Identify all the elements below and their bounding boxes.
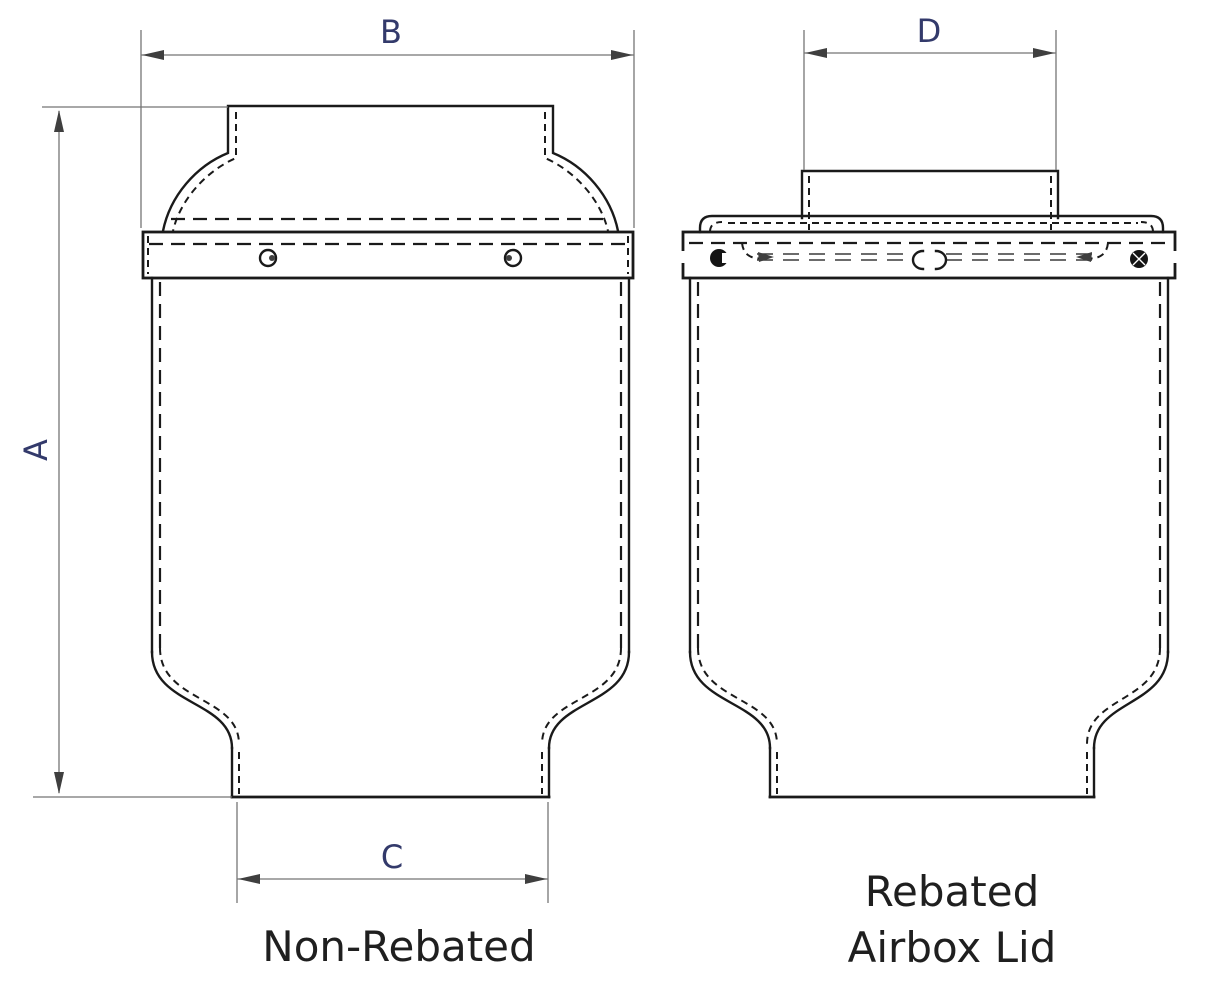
dim-label-c: C (381, 838, 403, 876)
right-view-rebated (679, 171, 1179, 797)
right-rebate-corner-echo-left (710, 222, 722, 232)
paren-right-icon (936, 251, 946, 269)
left-view-non-rebated (143, 106, 633, 797)
caption-rebated-line1: Rebated (865, 867, 1040, 916)
left-band-screw-right (505, 250, 521, 266)
dim-label-d: D (917, 12, 942, 50)
right-rebate-corner-echo-right (1141, 222, 1153, 232)
dimension-a: A (17, 107, 232, 797)
left-neck-hidden-right (545, 112, 608, 231)
screw-dot-icon (269, 255, 275, 261)
airbox-lid-drawing: B A C D Non-Re (0, 0, 1214, 995)
right-hidden-hook-left (742, 243, 774, 262)
fixing-notch (722, 253, 730, 263)
dim-d-arrow-right-icon (1033, 48, 1055, 58)
caption-non-rebated: Non-Rebated (262, 922, 535, 971)
dim-b-arrow-right-icon (611, 50, 633, 60)
dimension-b: B (141, 13, 634, 228)
right-band-notch-left (679, 251, 687, 263)
dim-c-arrow-right-icon (525, 874, 547, 884)
left-band-outline (143, 232, 633, 278)
dim-b-arrow-left-icon (142, 50, 164, 60)
caption-rebated-line2: Airbox Lid (848, 923, 1057, 972)
right-band-fixing-right (1130, 250, 1148, 268)
dim-label-a: A (17, 439, 55, 461)
dim-label-b: B (380, 13, 402, 51)
left-neck-outline (163, 106, 618, 231)
dim-a-arrow-top-icon (54, 110, 64, 132)
screw-dot-icon (506, 255, 512, 261)
left-neck-hidden-left (173, 112, 236, 231)
right-spigot-outline (802, 171, 1058, 218)
dimension-d: D (804, 12, 1056, 170)
dim-d-arrow-left-icon (805, 48, 827, 58)
right-band-center-detail (913, 251, 946, 269)
right-band-fixing-left (710, 249, 730, 267)
dim-a-arrow-bottom-icon (54, 772, 64, 794)
right-hidden-hook-right (1076, 243, 1108, 262)
paren-left-icon (913, 251, 923, 269)
left-band-screw-left (260, 250, 276, 266)
technical-drawing-svg: B A C D Non-Re (0, 0, 1214, 995)
dim-c-arrow-left-icon (238, 874, 260, 884)
dimension-c: C (237, 802, 548, 903)
right-band-notch-right (1171, 251, 1179, 263)
